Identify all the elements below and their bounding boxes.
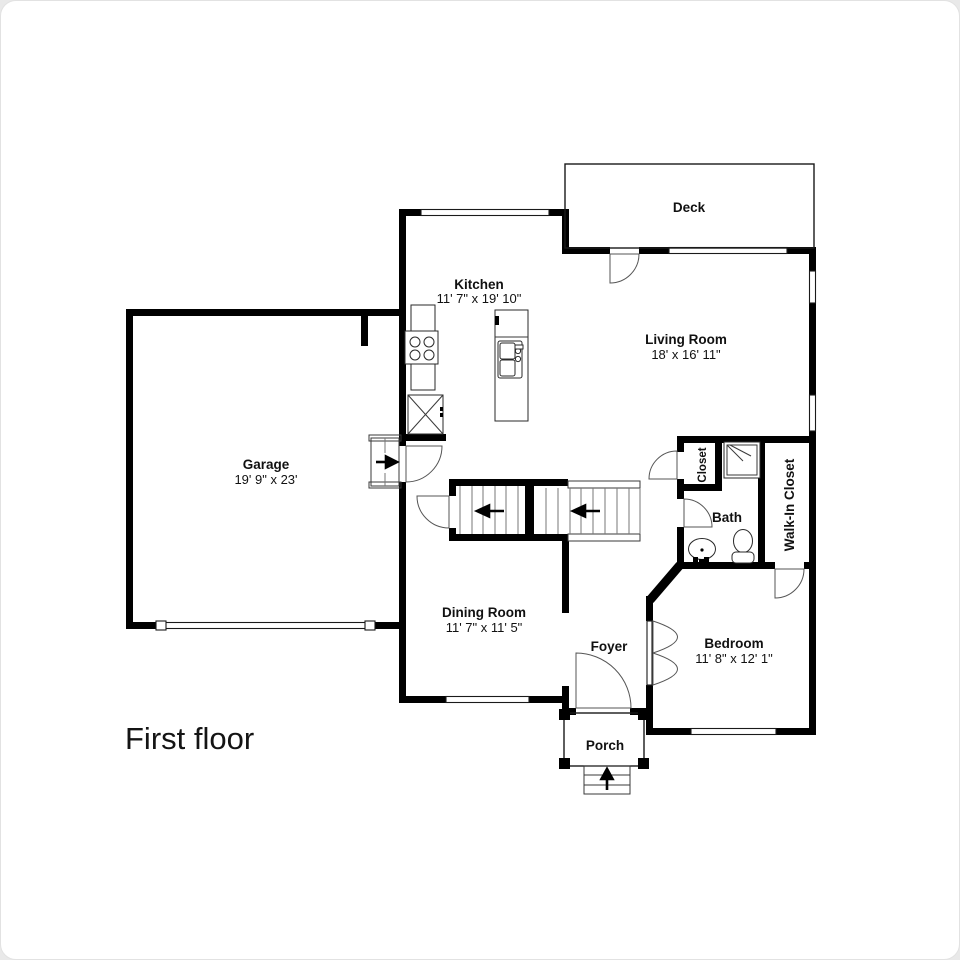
garage-door-opening bbox=[158, 623, 373, 629]
front-door bbox=[576, 653, 631, 708]
walk-in-closet-label: Walk-In Closet bbox=[782, 458, 797, 551]
garage-entry-arrow-icon bbox=[376, 457, 397, 468]
stair-hall-door bbox=[417, 496, 449, 528]
kitchen-window bbox=[421, 210, 549, 216]
porch-steps bbox=[584, 766, 630, 794]
living-window-lower bbox=[810, 395, 816, 431]
bath-door bbox=[684, 499, 712, 527]
living-window-upper bbox=[810, 271, 816, 303]
deck-door bbox=[610, 254, 639, 283]
bedroom-label: Bedroom bbox=[704, 636, 763, 651]
entry-arrow-icon bbox=[602, 769, 613, 790]
stair-arrow-left-icon bbox=[477, 506, 504, 517]
kitchen-label: Kitchen bbox=[454, 277, 504, 292]
closet-label: Closet bbox=[697, 447, 709, 482]
living-room-dims: 18' x 16' 11" bbox=[651, 347, 721, 362]
kitchen-dims: 11' 7" x 19' 10" bbox=[437, 291, 522, 306]
garage-label: Garage bbox=[243, 457, 290, 472]
kitchen-island bbox=[495, 310, 528, 421]
shower-icon bbox=[724, 442, 760, 478]
pantry-unit-icon bbox=[408, 395, 443, 434]
bedroom-double-doors bbox=[647, 621, 678, 685]
floor-plan-canvas: Deck Kitchen 11' 7" x 19' 10" Living Roo… bbox=[1, 1, 960, 960]
floorplan-image: Deck Kitchen 11' 7" x 19' 10" Living Roo… bbox=[0, 0, 960, 960]
deck-label: Deck bbox=[673, 200, 706, 215]
foyer-label: Foyer bbox=[591, 639, 629, 654]
page-title: First floor bbox=[125, 721, 254, 757]
staircase bbox=[460, 481, 640, 541]
garage-door-cap-left bbox=[156, 621, 166, 630]
garage-dims: 19' 9" x 23' bbox=[234, 472, 297, 487]
porch-label: Porch bbox=[586, 738, 624, 753]
bedroom-dims: 11' 8" x 12' 1" bbox=[695, 651, 773, 666]
dining-room-dims: 11' 7" x 11' 5" bbox=[446, 620, 523, 635]
garage-steps bbox=[369, 435, 401, 488]
bedroom-window bbox=[691, 729, 776, 735]
closet-door bbox=[649, 451, 677, 479]
kitchen-sink-icon bbox=[498, 341, 523, 378]
toilet-icon bbox=[732, 530, 754, 564]
dining-window bbox=[446, 697, 529, 703]
bath-sink-icon bbox=[689, 539, 716, 564]
walk-in-closet-door bbox=[775, 569, 804, 598]
stove-icon bbox=[405, 331, 438, 364]
stair-arrow-right-icon bbox=[573, 506, 600, 517]
garage-door-cap-right bbox=[365, 621, 375, 630]
dining-room-label: Dining Room bbox=[442, 605, 526, 620]
bath-label: Bath bbox=[712, 510, 742, 525]
garage-entry-door bbox=[406, 446, 442, 482]
room-labels: Deck Kitchen 11' 7" x 19' 10" Living Roo… bbox=[234, 200, 797, 753]
living-room-label: Living Room bbox=[645, 332, 727, 347]
